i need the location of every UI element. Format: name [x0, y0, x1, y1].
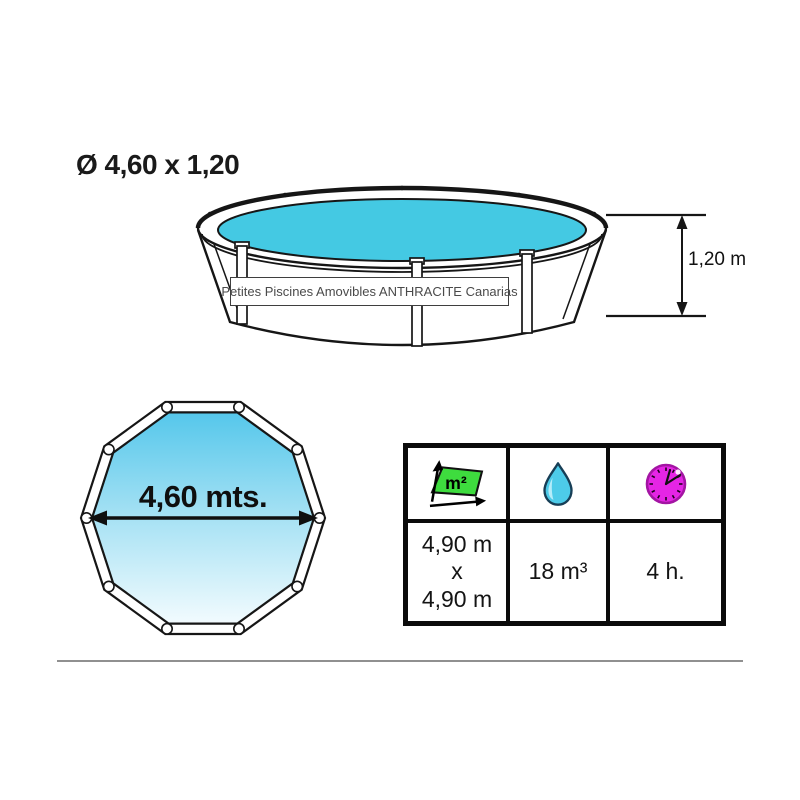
watermark-caption: Petites Piscines Amovibles ANTHRACITE Ca… — [230, 277, 509, 306]
bottom-divider-line — [57, 660, 743, 662]
volume-icon-cell — [510, 448, 610, 523]
area-m2-icon: m² — [426, 458, 488, 510]
pool-top-view-illustration — [75, 390, 331, 646]
duration-value-cell: 4 h. — [610, 523, 721, 621]
spec-table: m² — [403, 443, 726, 626]
area-icon-label: m² — [445, 473, 467, 493]
clock-icon — [643, 461, 689, 507]
height-label: 1,20 m — [688, 249, 746, 271]
area-value-cell: 4,90 m x 4,90 m — [408, 523, 510, 621]
water-drop-icon — [540, 460, 576, 508]
product-dimensions-title: Ø 4,60 x 1,20 — [76, 149, 239, 181]
volume-value-cell: 18 m³ — [510, 523, 610, 621]
duration-value: 4 h. — [646, 558, 684, 586]
area-icon-cell: m² — [408, 448, 510, 523]
product-diagram-page: Ø 4,60 x 1,20 Petites Piscines Amovibles… — [0, 0, 800, 800]
volume-value: 18 m³ — [529, 558, 588, 586]
area-value: 4,90 m x 4,90 m — [422, 531, 492, 614]
pool-side-view-illustration — [192, 182, 612, 350]
duration-icon-cell — [610, 448, 721, 523]
diameter-label: 4,60 mts. — [75, 479, 331, 515]
